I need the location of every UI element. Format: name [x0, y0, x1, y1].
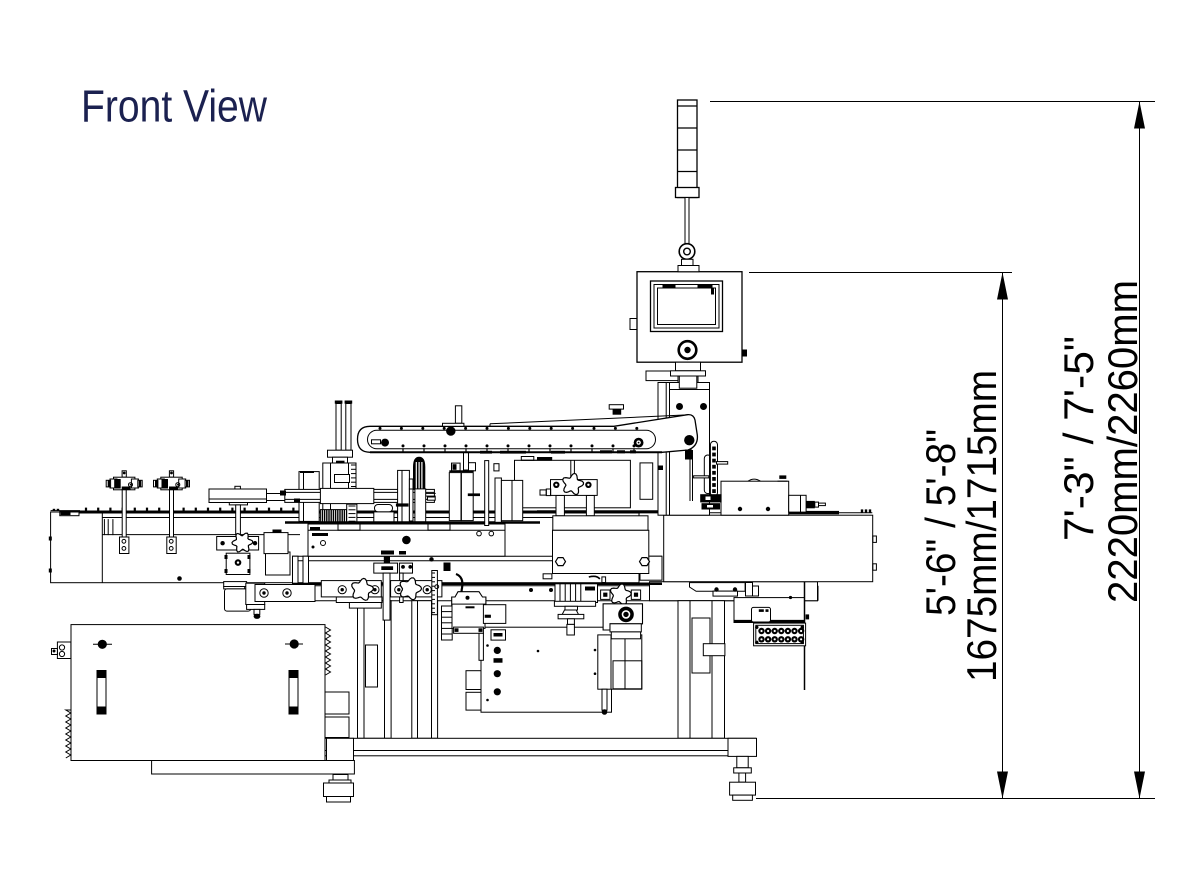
svg-text:5'-6" / 5'-8": 5'-6" / 5'-8"	[917, 429, 964, 616]
svg-text:2220mm/2260mm: 2220mm/2260mm	[1099, 280, 1146, 603]
svg-text:7'-3" / 7'-5": 7'-3" / 7'-5"	[1055, 336, 1102, 541]
svg-text:1675mm/1715mm: 1675mm/1715mm	[958, 370, 1005, 682]
svg-text:Front View: Front View	[81, 81, 267, 132]
